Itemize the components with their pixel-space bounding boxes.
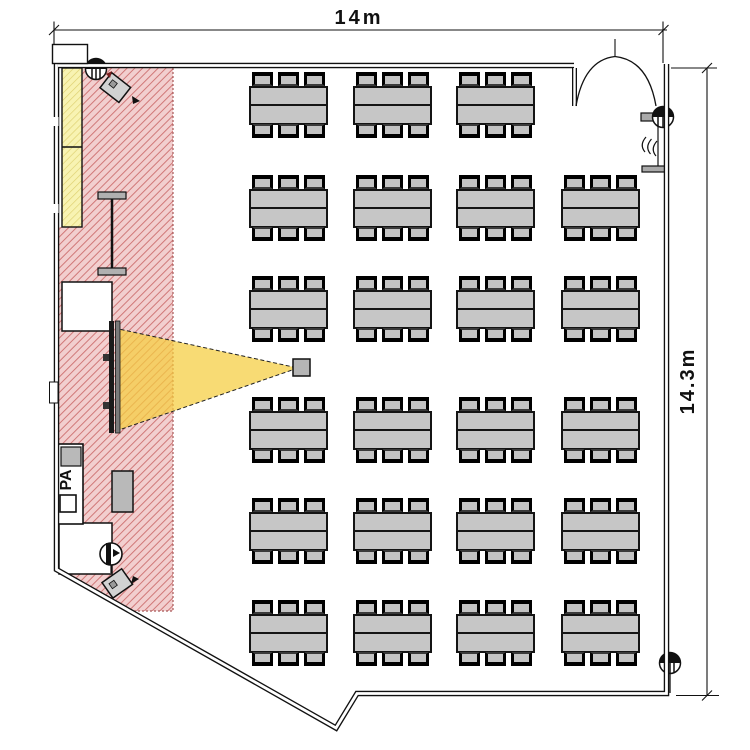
chair <box>564 498 585 512</box>
chair <box>616 652 637 666</box>
chair <box>616 449 637 463</box>
chair <box>511 175 532 189</box>
chair <box>356 72 377 86</box>
chair <box>459 72 480 86</box>
chair <box>485 498 506 512</box>
chair <box>590 600 611 614</box>
chair <box>252 652 273 666</box>
chair <box>590 328 611 342</box>
table-unit <box>249 498 328 565</box>
chair <box>304 449 325 463</box>
chair <box>278 328 299 342</box>
chair <box>408 276 429 290</box>
chair <box>408 227 429 241</box>
table-unit <box>353 276 432 343</box>
chair <box>590 227 611 241</box>
table <box>561 189 640 228</box>
chair <box>459 550 480 564</box>
table <box>353 189 432 228</box>
chair <box>485 600 506 614</box>
chair <box>304 600 325 614</box>
table-unit <box>249 600 328 667</box>
table <box>456 512 535 551</box>
chair <box>304 652 325 666</box>
chair <box>408 124 429 138</box>
table-unit <box>353 175 432 242</box>
tables-layer <box>0 0 750 750</box>
chair <box>252 328 273 342</box>
chair <box>564 175 585 189</box>
chair <box>511 72 532 86</box>
chair <box>278 498 299 512</box>
chair <box>564 652 585 666</box>
chair <box>616 600 637 614</box>
chair <box>485 175 506 189</box>
chair <box>278 72 299 86</box>
chair <box>278 449 299 463</box>
chair <box>304 227 325 241</box>
chair <box>616 328 637 342</box>
chair <box>356 498 377 512</box>
chair <box>278 652 299 666</box>
table <box>249 411 328 450</box>
table-unit <box>456 397 535 464</box>
table <box>456 411 535 450</box>
table-unit <box>561 600 640 667</box>
chair <box>304 397 325 411</box>
chair <box>459 449 480 463</box>
table <box>249 189 328 228</box>
chair <box>278 276 299 290</box>
chair <box>356 124 377 138</box>
table <box>561 614 640 653</box>
chair <box>408 550 429 564</box>
chair <box>356 652 377 666</box>
chair <box>564 276 585 290</box>
chair <box>382 276 403 290</box>
chair <box>408 652 429 666</box>
chair <box>304 498 325 512</box>
chair <box>485 72 506 86</box>
chair <box>356 328 377 342</box>
table <box>456 86 535 125</box>
chair <box>382 328 403 342</box>
chair <box>590 652 611 666</box>
chair <box>278 600 299 614</box>
table <box>353 411 432 450</box>
chair <box>252 175 273 189</box>
chair <box>590 175 611 189</box>
chair <box>252 550 273 564</box>
table-unit <box>456 600 535 667</box>
chair <box>382 72 403 86</box>
chair <box>408 449 429 463</box>
chair <box>485 124 506 138</box>
table-unit <box>353 397 432 464</box>
chair <box>459 498 480 512</box>
chair <box>252 397 273 411</box>
chair <box>511 449 532 463</box>
table-unit <box>561 498 640 565</box>
chair <box>564 550 585 564</box>
chair <box>408 175 429 189</box>
chair <box>356 449 377 463</box>
chair <box>278 124 299 138</box>
chair <box>616 498 637 512</box>
table-unit <box>249 175 328 242</box>
table-unit <box>353 72 432 139</box>
chair <box>616 397 637 411</box>
chair <box>485 652 506 666</box>
chair <box>252 449 273 463</box>
chair <box>485 227 506 241</box>
table <box>249 86 328 125</box>
chair <box>564 227 585 241</box>
chair <box>511 328 532 342</box>
chair <box>382 124 403 138</box>
chair <box>278 175 299 189</box>
chair <box>408 328 429 342</box>
chair <box>511 550 532 564</box>
chair <box>616 175 637 189</box>
chair <box>252 227 273 241</box>
table <box>249 512 328 551</box>
chair <box>304 328 325 342</box>
chair <box>252 498 273 512</box>
chair <box>252 276 273 290</box>
chair <box>382 227 403 241</box>
table-unit <box>561 276 640 343</box>
chair <box>511 124 532 138</box>
chair <box>590 550 611 564</box>
table <box>249 290 328 329</box>
chair <box>304 124 325 138</box>
chair <box>459 227 480 241</box>
chair <box>459 652 480 666</box>
chair <box>278 550 299 564</box>
chair <box>278 227 299 241</box>
table-unit <box>561 397 640 464</box>
chair <box>382 397 403 411</box>
table-unit <box>249 397 328 464</box>
table <box>456 290 535 329</box>
table <box>353 290 432 329</box>
chair <box>511 276 532 290</box>
chair <box>356 227 377 241</box>
table <box>353 512 432 551</box>
chair <box>459 124 480 138</box>
chair <box>356 550 377 564</box>
chair <box>459 175 480 189</box>
chair <box>616 550 637 564</box>
table-unit <box>249 72 328 139</box>
chair <box>616 227 637 241</box>
table <box>353 86 432 125</box>
chair <box>459 600 480 614</box>
chair <box>485 276 506 290</box>
table-unit <box>456 276 535 343</box>
chair <box>304 72 325 86</box>
chair <box>382 600 403 614</box>
chair <box>278 397 299 411</box>
chair <box>485 449 506 463</box>
chair <box>459 328 480 342</box>
table <box>456 189 535 228</box>
chair <box>564 600 585 614</box>
chair <box>356 397 377 411</box>
table-unit <box>456 175 535 242</box>
chair <box>408 498 429 512</box>
chair <box>485 550 506 564</box>
table <box>353 614 432 653</box>
chair <box>485 328 506 342</box>
table <box>249 614 328 653</box>
chair <box>564 397 585 411</box>
chair <box>252 72 273 86</box>
table-unit <box>249 276 328 343</box>
chair <box>356 600 377 614</box>
chair <box>590 498 611 512</box>
chair <box>304 550 325 564</box>
chair <box>459 397 480 411</box>
chair <box>252 124 273 138</box>
chair <box>408 397 429 411</box>
chair <box>382 498 403 512</box>
chair <box>408 600 429 614</box>
chair <box>590 276 611 290</box>
chair <box>564 328 585 342</box>
chair <box>304 175 325 189</box>
table-unit <box>456 72 535 139</box>
chair <box>511 227 532 241</box>
chair <box>590 397 611 411</box>
chair <box>511 498 532 512</box>
chair <box>356 175 377 189</box>
chair <box>616 276 637 290</box>
chair <box>459 276 480 290</box>
table-unit <box>456 498 535 565</box>
chair <box>590 449 611 463</box>
table <box>561 290 640 329</box>
chair <box>382 550 403 564</box>
table-unit <box>561 175 640 242</box>
table-unit <box>353 600 432 667</box>
table <box>456 614 535 653</box>
chair <box>511 397 532 411</box>
chair <box>382 449 403 463</box>
chair <box>564 449 585 463</box>
table-unit <box>353 498 432 565</box>
chair <box>304 276 325 290</box>
floor-plan: PA <box>0 0 750 750</box>
chair <box>511 600 532 614</box>
table <box>561 512 640 551</box>
chair <box>485 397 506 411</box>
chair <box>511 652 532 666</box>
chair <box>356 276 377 290</box>
chair <box>382 652 403 666</box>
chair <box>408 72 429 86</box>
chair <box>382 175 403 189</box>
chair <box>252 600 273 614</box>
table <box>561 411 640 450</box>
